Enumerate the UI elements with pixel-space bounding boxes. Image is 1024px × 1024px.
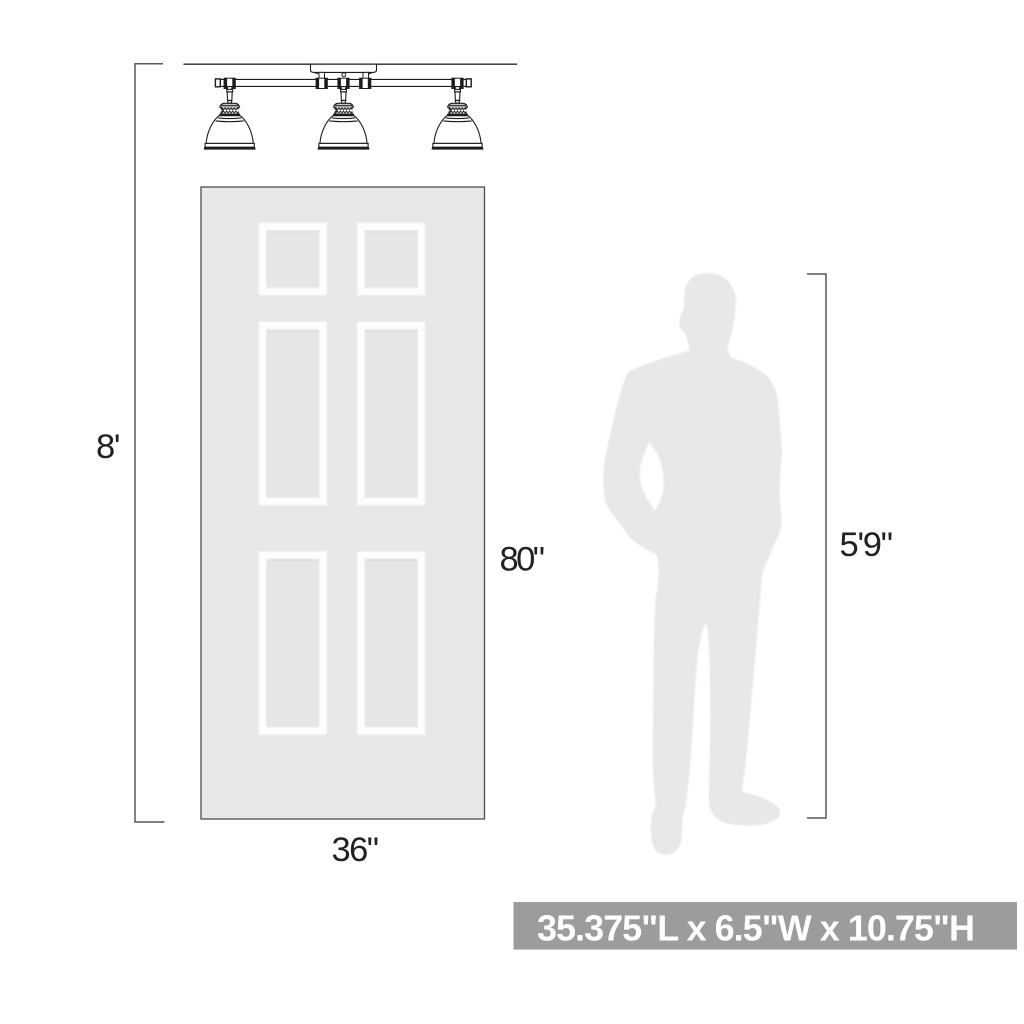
svg-text:5'9": 5'9" bbox=[840, 526, 894, 564]
svg-text:36": 36" bbox=[332, 831, 380, 869]
svg-text:8': 8' bbox=[96, 428, 121, 466]
svg-text:35.375"L x 6.5"W x 10.75"H: 35.375"L x 6.5"W x 10.75"H bbox=[537, 908, 975, 949]
svg-text:80": 80" bbox=[500, 541, 546, 579]
